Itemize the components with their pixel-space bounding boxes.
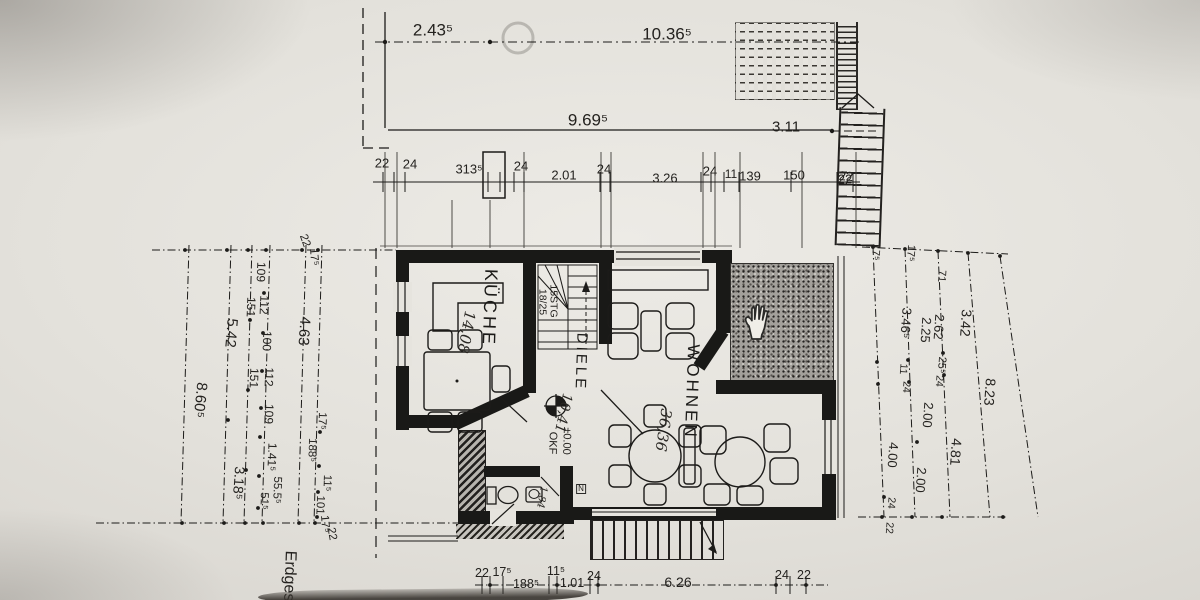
dim-label: 24 xyxy=(514,160,528,173)
dim-label: OKF xyxy=(546,432,558,455)
dim-label: 313⁵ xyxy=(455,163,482,176)
dim-label: 109 xyxy=(255,262,268,282)
dim-label: 51⁵ xyxy=(257,492,269,510)
dim-label: 22 xyxy=(475,567,489,580)
dim-label: 11 xyxy=(897,363,908,375)
dim-label: 3.18⁵ xyxy=(231,466,247,500)
dim-label: 4.63 xyxy=(295,316,312,346)
dim-label: 25⁵ xyxy=(935,356,947,374)
dim-label: 17⁵ xyxy=(307,248,320,266)
dim-label: 10.36⁵ xyxy=(642,26,692,43)
dim-label: 4.81 xyxy=(948,438,964,466)
dim-label: 3.46⁵ xyxy=(898,307,913,339)
hand-cursor-icon xyxy=(742,302,776,342)
dim-label: 22 xyxy=(838,169,853,183)
dim-label: 17⁵ xyxy=(315,412,327,430)
dim-label: 17⁵ xyxy=(904,244,916,262)
dim-label: 1.41⁵ xyxy=(266,443,279,472)
dim-label: 5.42 xyxy=(222,318,239,348)
room-label: DIELE xyxy=(572,333,589,392)
dim-label: 24 xyxy=(403,158,417,171)
dim-label: 24 xyxy=(900,381,911,393)
dim-label: 55.5⁵ xyxy=(270,476,282,504)
dim-label: 15STG xyxy=(548,284,559,317)
room-label: WOHNEN xyxy=(682,344,702,440)
dim-label: 24 xyxy=(885,497,896,509)
dim-label: 22 xyxy=(324,527,338,542)
dim-label: 2.62 xyxy=(932,314,947,340)
dim-label: ±0.00 xyxy=(560,427,572,455)
dim-label: 150 xyxy=(783,169,805,182)
dim-label: 151 xyxy=(248,368,261,388)
dim-label: 71 xyxy=(935,270,947,283)
dim-label: 11 xyxy=(725,168,737,180)
dim-label: 1.01 xyxy=(560,577,584,590)
dim-label: 100 xyxy=(261,331,274,351)
marker-label: N xyxy=(576,484,586,494)
plan-linework xyxy=(0,0,1200,600)
dim-label: 9.69⁵ xyxy=(568,112,608,129)
dim-label: 151 xyxy=(245,297,258,317)
dim-label: 112 xyxy=(258,295,271,315)
dim-label: 101 xyxy=(313,495,325,515)
dim-label: 2.01 xyxy=(551,169,576,182)
dim-label: 22 xyxy=(797,569,811,582)
dim-label: 3.11 xyxy=(772,120,800,135)
dim-label: 139 xyxy=(739,170,761,183)
area-value: 36,36 xyxy=(653,408,674,453)
dim-label: 8.60⁵ xyxy=(191,382,210,419)
dim-label: 18/25 xyxy=(537,289,548,315)
dim-label: 112 xyxy=(263,367,276,387)
dim-label: 3.26 xyxy=(652,172,677,185)
dim-label: 8.23 xyxy=(982,378,998,406)
dim-label: 2.00 xyxy=(921,402,936,428)
dim-label: 24 xyxy=(933,375,944,387)
dim-label: 24 xyxy=(703,165,717,178)
dim-label: 109 xyxy=(263,404,276,424)
dim-label: 2.43⁵ xyxy=(413,22,453,39)
dim-label: 24 xyxy=(587,570,601,583)
floor-plan-photo: 2.43⁵10.36⁵9.69⁵3.112224313⁵242.01243.26… xyxy=(0,0,1200,600)
dim-label: 17⁵ xyxy=(869,243,881,261)
dim-label: 24 xyxy=(597,163,611,176)
room-label: KÜCHE xyxy=(480,269,501,348)
dim-label: 2.00 xyxy=(914,467,929,493)
dim-label: 17⁵ xyxy=(492,566,511,579)
dim-label: 188⁵ xyxy=(305,438,317,462)
dim-label: 6.26 xyxy=(664,575,691,589)
dim-label: 4.00 xyxy=(886,442,901,468)
dim-label: 22 xyxy=(375,157,389,170)
dim-label: 24 xyxy=(775,569,789,582)
dim-label: 3.42 xyxy=(958,309,974,337)
dim-label: 11⁵ xyxy=(320,474,332,491)
dim-label: 22 xyxy=(883,522,894,534)
